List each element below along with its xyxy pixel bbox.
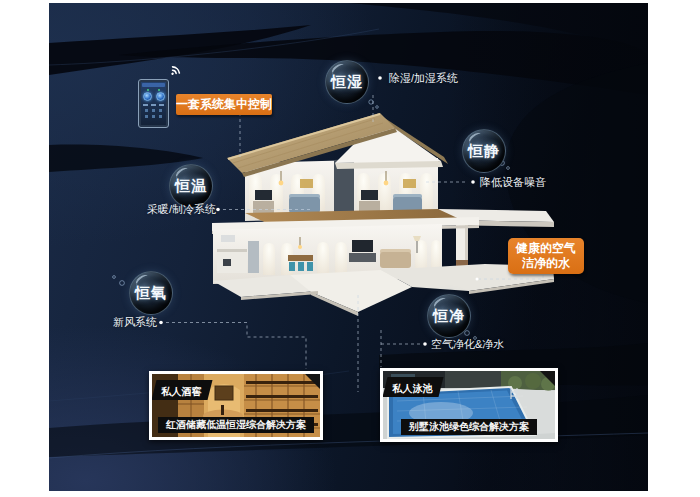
wine-cellar-tag: 私人酒窖 xyxy=(152,380,212,400)
healthy-air-water-box: 健康的空气 洁净的水 xyxy=(508,238,584,274)
bubble-purity: 恒净 xyxy=(427,294,471,338)
label-purity: 空气净化&净水 xyxy=(431,337,504,351)
smart-home-infographic: { "colors": { "accent_orange": "#DF7518"… xyxy=(0,0,700,497)
phone-icon-row xyxy=(145,109,162,112)
photo-corner-fold xyxy=(305,374,320,389)
label-quiet: 降低设备噪音 xyxy=(480,175,546,189)
pool-tag-text: 私人泳池 xyxy=(393,382,433,396)
phone-icon-row xyxy=(145,115,162,118)
highlight-line1: 健康的空气 xyxy=(508,241,584,256)
pool-caption: 别墅泳池绿色综合解决方案 xyxy=(401,419,537,435)
label-temperature: 采暖/制冷系统 xyxy=(147,202,216,216)
villa-pool-card: 私人泳池 别墅泳池绿色综合解决方案 xyxy=(380,368,558,442)
wine-cellar-caption: 红酒储藏低温恒湿综合解决方案 xyxy=(158,417,314,433)
wine-cellar-card: 私人酒窖 红酒储藏低温恒湿综合解决方案 xyxy=(149,371,323,440)
bubble-quiet-text: 恒静 xyxy=(468,142,500,161)
highlight-line2: 洁净的水 xyxy=(508,256,584,271)
dark-panel: 一套系统集中控制 健康的空气 洁净的水 恒湿 恒静 恒温 恒氧 恒净 除湿/加湿… xyxy=(49,3,648,491)
phone-status-dots xyxy=(147,89,160,91)
bubble-temperature-text: 恒温 xyxy=(175,177,207,196)
bubble-humidity: 恒湿 xyxy=(325,60,369,104)
smart-home-app-phone xyxy=(138,79,169,128)
bubble-oxygen-text: 恒氧 xyxy=(135,284,167,303)
bubble-oxygen: 恒氧 xyxy=(129,271,173,315)
phone-control-knob xyxy=(143,92,152,101)
bubble-quiet: 恒静 xyxy=(462,129,506,173)
bubble-purity-text: 恒净 xyxy=(433,307,465,326)
bubble-humidity-text: 恒湿 xyxy=(331,73,363,92)
photo-corner-fold xyxy=(540,371,555,386)
label-oxygen: 新风系统 xyxy=(113,315,157,329)
phone-screen xyxy=(141,82,166,125)
wine-cellar-tag-text: 私人酒窖 xyxy=(162,385,202,399)
phone-control-knob xyxy=(156,92,165,101)
phone-app-header xyxy=(142,83,165,87)
phone-readout-row xyxy=(143,104,164,106)
central-control-banner: 一套系统集中控制 xyxy=(176,94,272,115)
label-humidity: 除湿/加湿系统 xyxy=(389,71,458,85)
pool-tag: 私人泳池 xyxy=(383,377,443,397)
